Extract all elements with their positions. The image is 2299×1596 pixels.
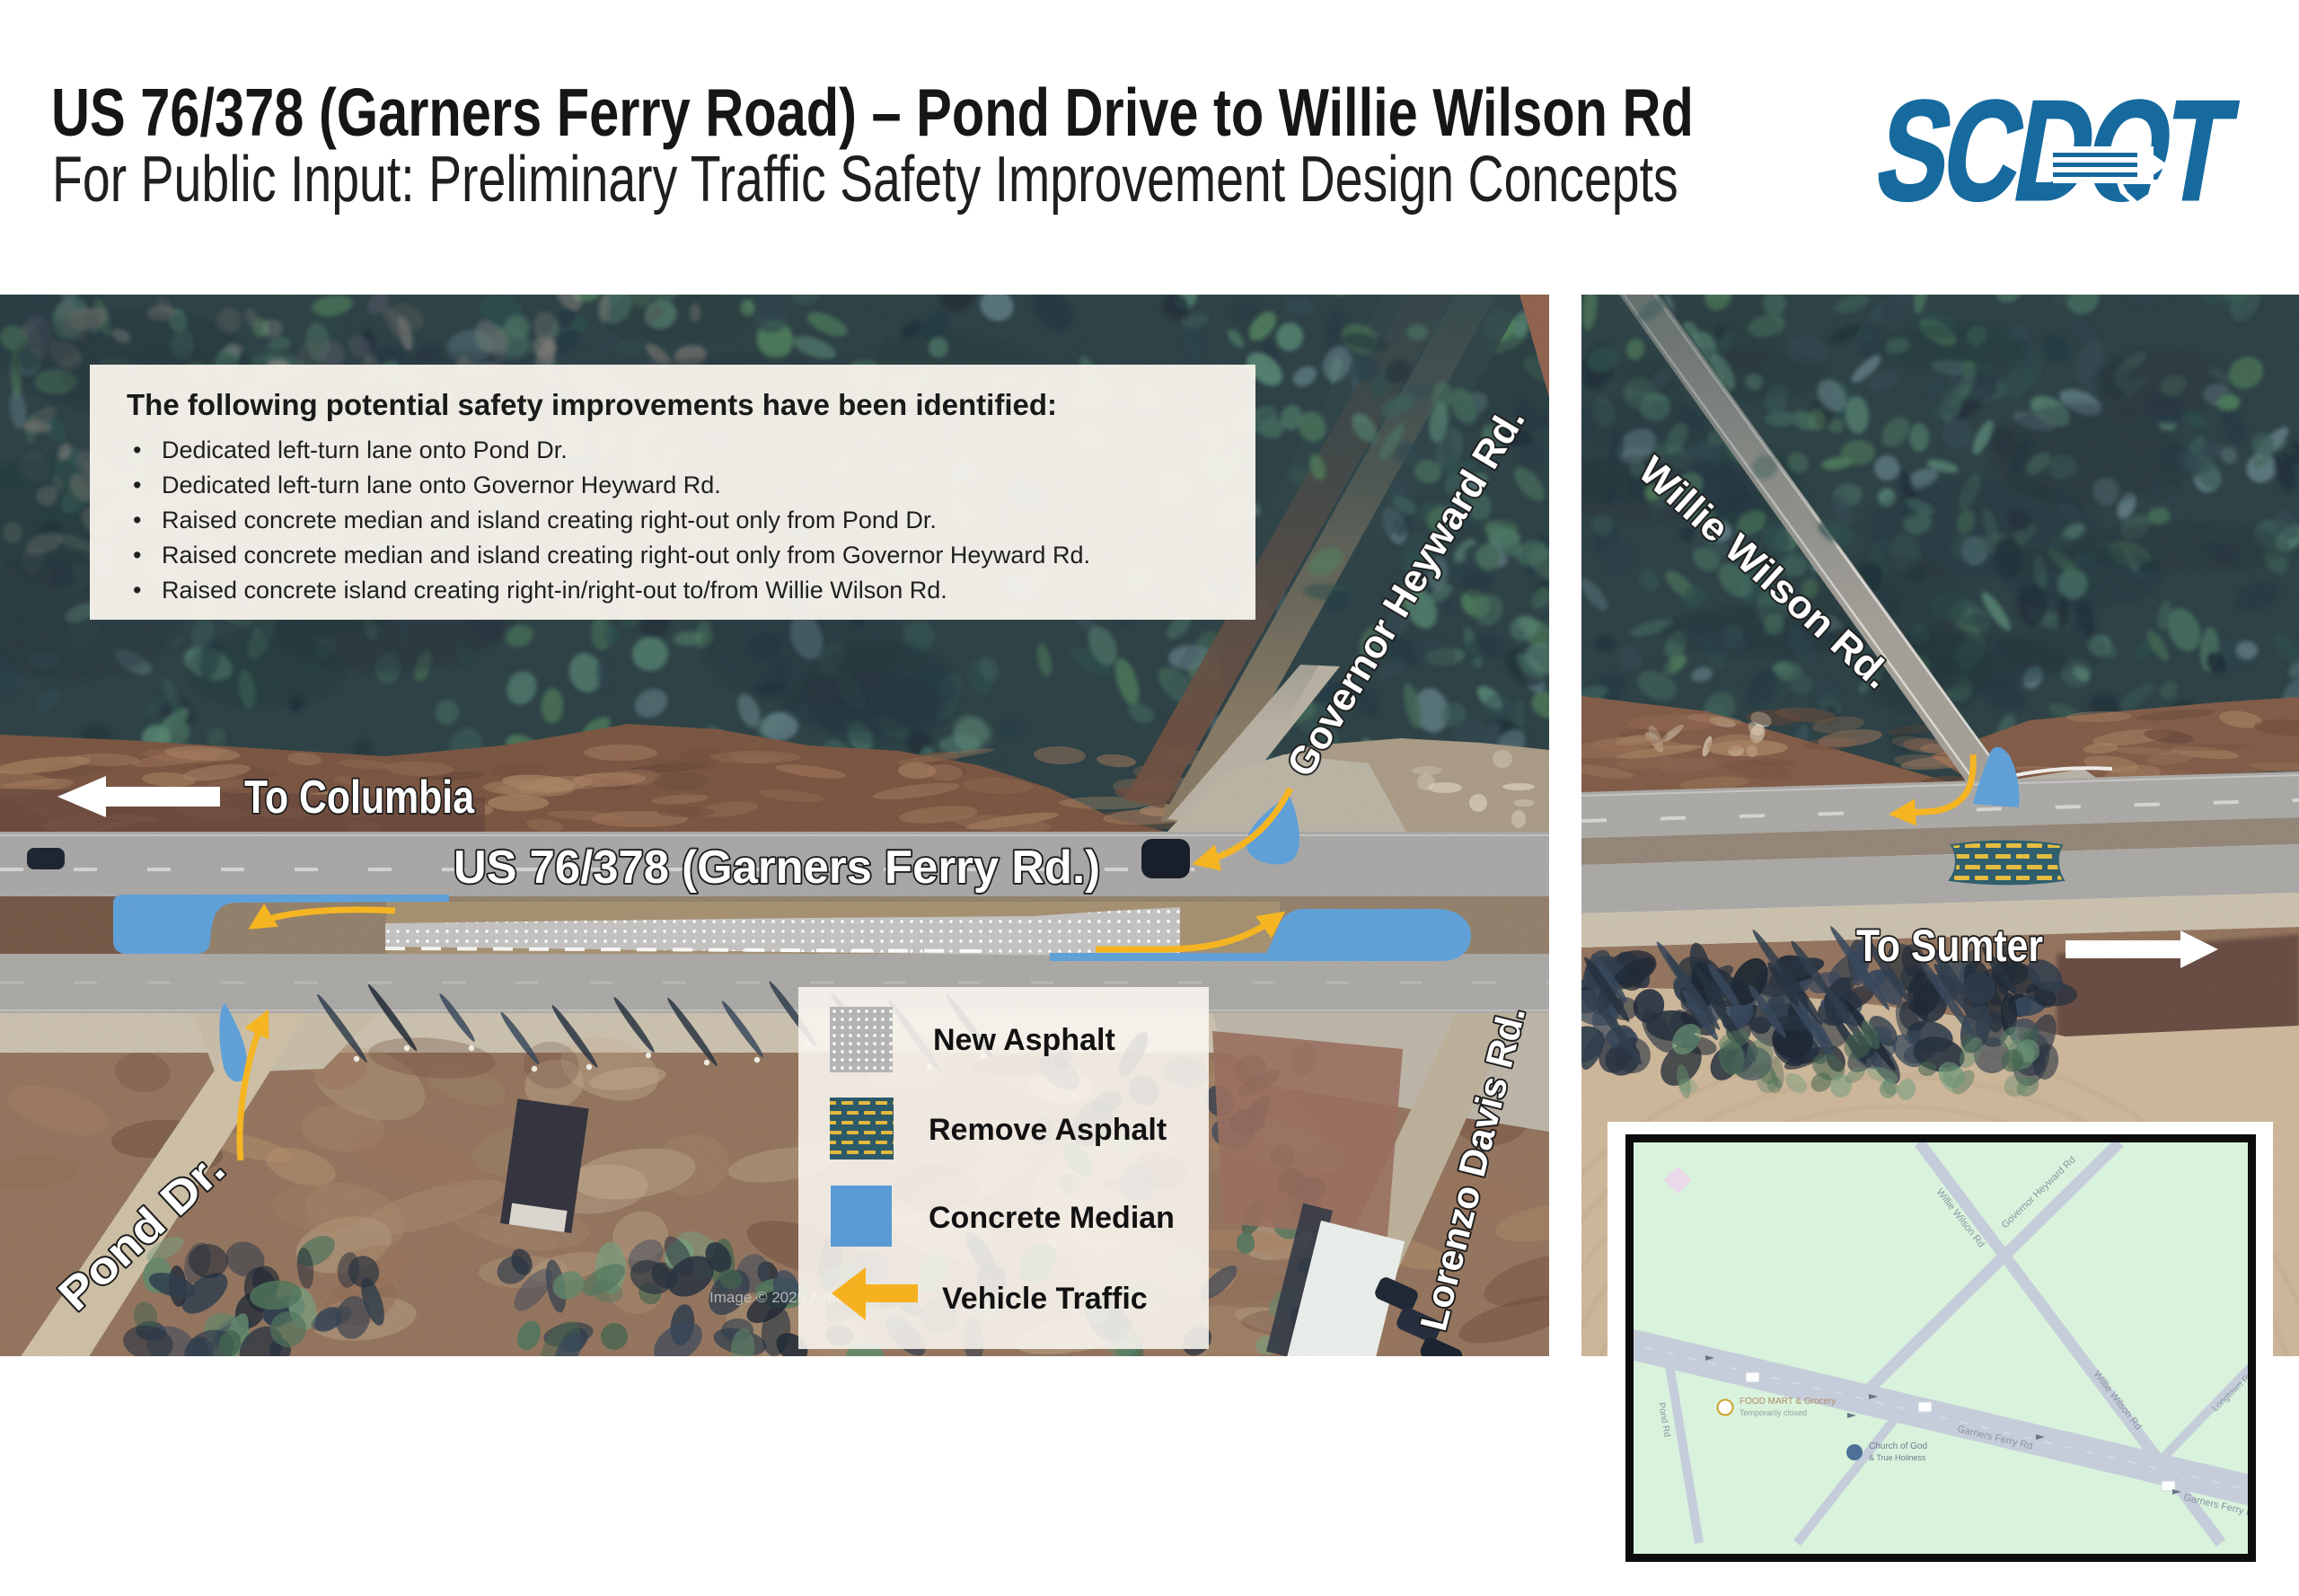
svg-text:FOOD MART & Grocery: FOOD MART & Grocery — [1740, 1397, 1836, 1406]
svg-text:Temporarily closed: Temporarily closed — [1740, 1408, 1807, 1417]
svg-text:Church of God: Church of God — [1869, 1442, 1927, 1451]
svg-text:& True Holiness: & True Holiness — [1869, 1453, 1926, 1462]
